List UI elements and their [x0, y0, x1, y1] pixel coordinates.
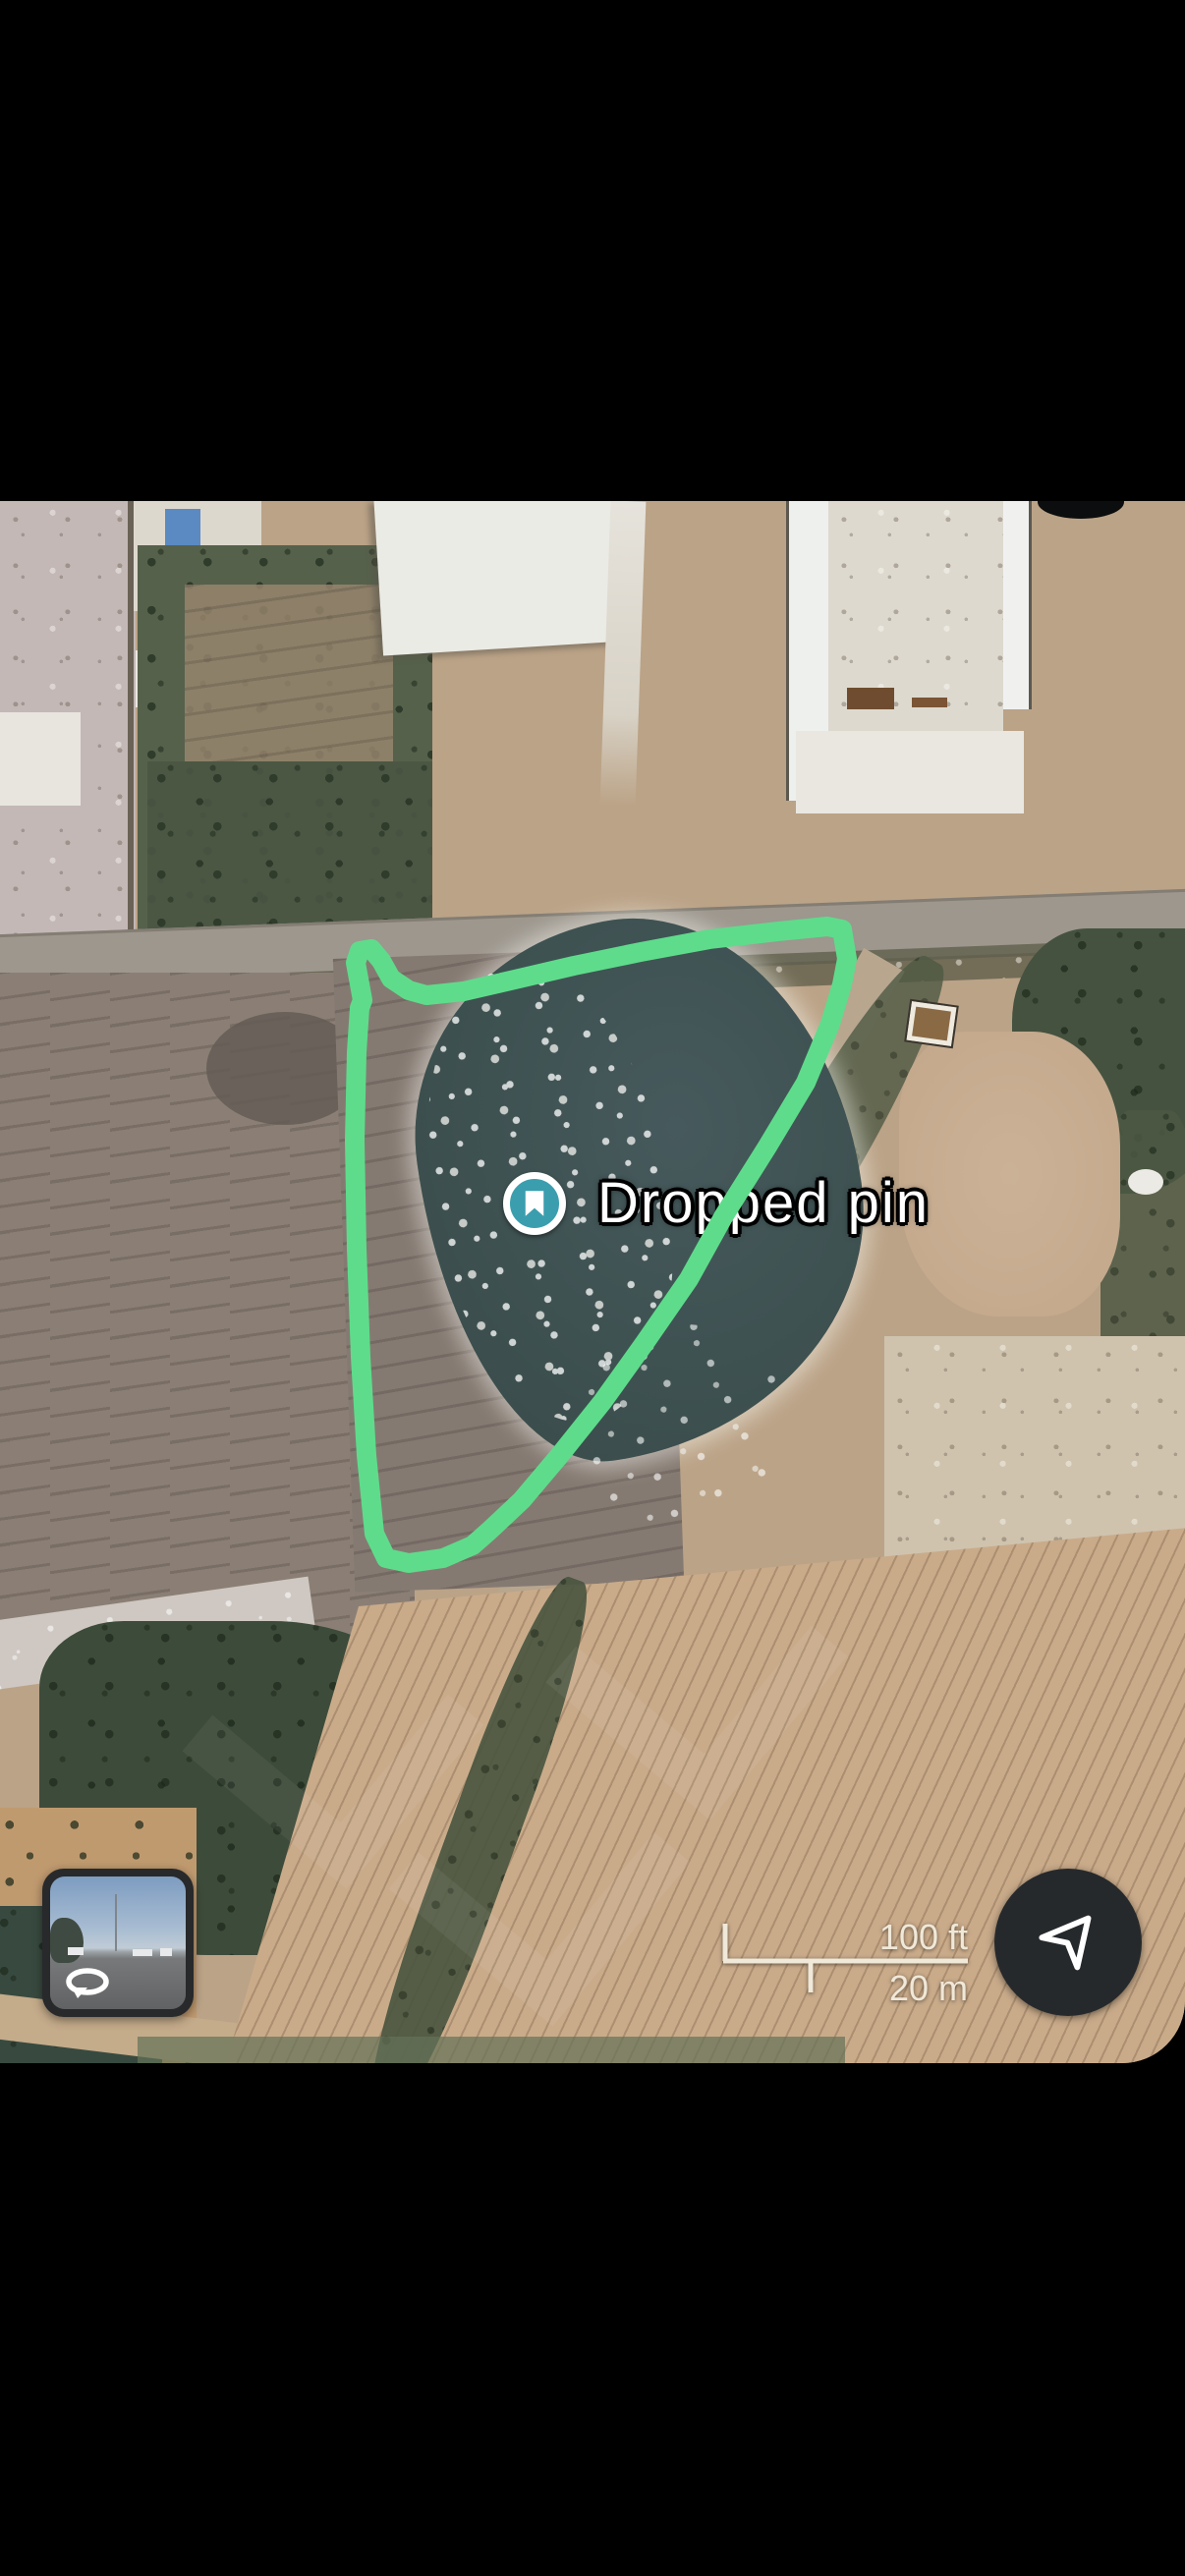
dropped-pin-text: Dropped pin	[597, 1170, 930, 1236]
terrain-dark-tank	[1038, 501, 1124, 519]
street-view-building	[68, 1947, 84, 1955]
terrain-orchard-trees-bottom	[147, 761, 432, 938]
dropped-pin-label[interactable]: Dropped pin	[503, 1170, 930, 1236]
terrain-hut	[906, 1001, 956, 1046]
letterbox-top	[0, 0, 1185, 501]
navigation-arrow-icon	[1010, 1884, 1126, 2000]
compass-button[interactable]	[994, 1869, 1142, 2016]
saved-pin-icon	[503, 1172, 566, 1235]
phone-screenshot: Dropped pin 100 ft 20 m	[0, 0, 1185, 2576]
street-view-thumbnail[interactable]	[42, 1869, 194, 2017]
bookmark-glyph	[521, 1189, 548, 1218]
terrain-concrete-apron	[796, 731, 1024, 813]
street-view-antenna	[115, 1894, 117, 1951]
terrain-left-courtyard	[0, 712, 81, 806]
letterbox-bottom	[0, 2063, 1185, 2576]
terrain-bottom-green-strip	[138, 2037, 845, 2063]
map-viewport[interactable]: Dropped pin 100 ft 20 m	[0, 501, 1185, 2063]
terrain-orchard-rows	[185, 585, 393, 761]
street-view-tree-silhouette	[50, 1918, 84, 1963]
street-view-building	[160, 1948, 172, 1956]
street-view-building	[133, 1949, 152, 1956]
map-scale-bar: 100 ft 20 m	[712, 1906, 978, 2014]
scale-imperial-label: 100 ft	[879, 1917, 968, 1957]
terrain-white-warehouse	[373, 501, 630, 656]
terrain-open-dirt-patch	[899, 1032, 1120, 1316]
terrain-white-rock	[1128, 1169, 1163, 1195]
terrain-yard-sheds	[847, 688, 894, 709]
rotate-360-icon	[62, 1966, 113, 1999]
scale-metric-label: 20 m	[889, 1968, 968, 2008]
street-view-preview	[50, 1876, 186, 2009]
terrain-east-lane-strip	[1003, 501, 1032, 709]
